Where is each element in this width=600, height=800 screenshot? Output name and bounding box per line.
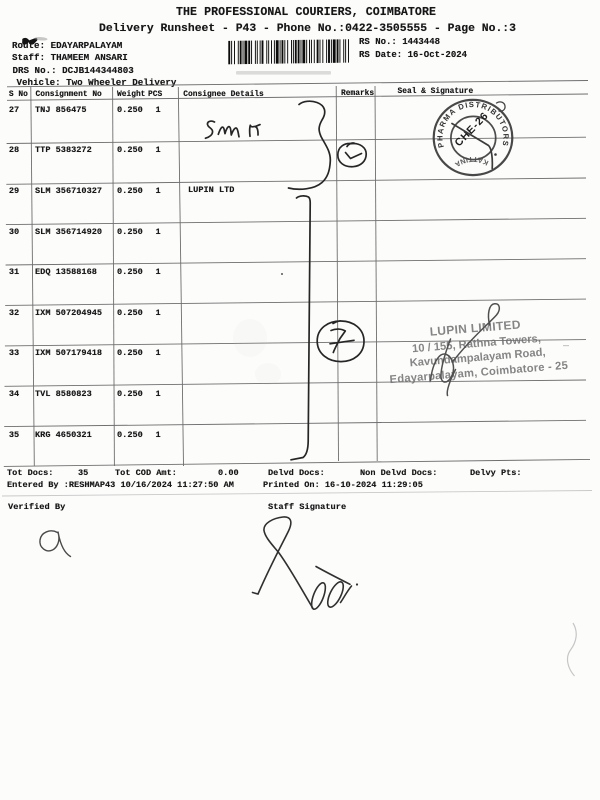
svg-text:KATTINA: KATTINA	[453, 155, 490, 170]
